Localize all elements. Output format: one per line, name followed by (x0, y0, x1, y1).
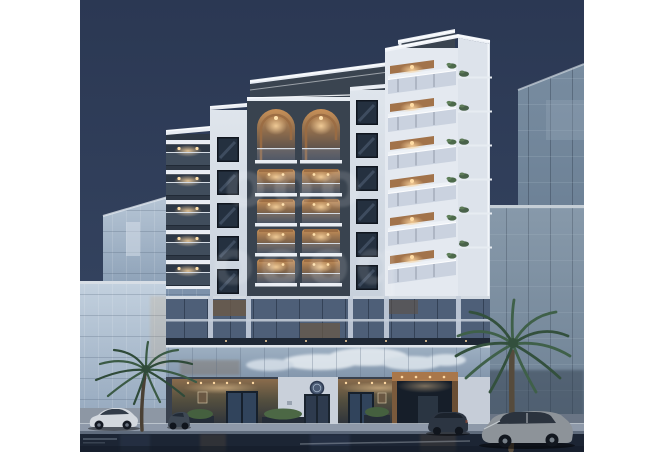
lit-interior (212, 300, 246, 316)
left-balcony-floor (166, 260, 210, 286)
watermark-row2: oooq (212, 226, 404, 299)
screenshot-canvas: ooo oooq (0, 0, 668, 452)
soffit-glow (397, 379, 453, 393)
lit-panel (126, 222, 140, 256)
window (356, 100, 378, 125)
glass-reflection (546, 100, 584, 140)
glass-door (243, 393, 256, 428)
left-balcony-floor (166, 170, 210, 196)
annex-coping (482, 205, 584, 208)
wheel-hub (550, 438, 555, 443)
arch-light (274, 116, 278, 120)
car-wheel (170, 423, 177, 430)
downlight (415, 376, 418, 379)
led-edge-strip (488, 44, 490, 304)
right-glass-annex (482, 205, 584, 430)
downlight (401, 376, 404, 379)
wood-side-wall (392, 381, 397, 430)
watermark-row1: ooo (224, 148, 367, 221)
lower-floors (166, 296, 490, 345)
left-balcony-floor (166, 230, 210, 256)
car-wheel (182, 423, 189, 430)
palm-crown (508, 338, 518, 348)
photo-border-right (584, 0, 668, 452)
credit-line (83, 438, 117, 440)
palm-crown (142, 365, 150, 373)
pier-strip (246, 296, 251, 342)
credit-line (83, 442, 105, 444)
wall-emblem (311, 382, 324, 395)
slab-line (166, 319, 490, 322)
uplight (225, 340, 227, 342)
wheel-hub (125, 423, 129, 427)
address-plaque (287, 401, 292, 405)
left-balcony-floor (166, 140, 210, 166)
navy-sedan (426, 412, 470, 436)
uplight (465, 340, 467, 342)
shrub (365, 407, 389, 417)
downlight (429, 376, 432, 379)
photo-border-left (0, 0, 80, 452)
tail-light (466, 420, 468, 423)
wheel-hub (97, 423, 101, 427)
soffit-band (166, 338, 490, 345)
pier-strip (348, 296, 353, 342)
uplight (385, 340, 387, 342)
left-balcony-floor (166, 200, 210, 226)
base-coping (80, 281, 168, 284)
car-wheel (455, 427, 463, 435)
shrub (264, 409, 302, 420)
car-wheel (433, 427, 441, 435)
wheel-hub (503, 439, 508, 444)
arch-light (319, 116, 323, 120)
car-shadow (479, 442, 575, 449)
downlight (443, 376, 446, 379)
uplight (345, 340, 347, 342)
glass-door (228, 393, 241, 428)
slab (166, 286, 210, 289)
shrub (187, 409, 213, 419)
rendering-scene: ooo oooq (80, 0, 584, 452)
lit-interior (300, 323, 340, 338)
pier-strip (384, 296, 389, 342)
listing-photo[interactable]: ooo oooq (80, 0, 584, 452)
glass-door (350, 394, 360, 427)
lit-interior (388, 300, 418, 314)
frame-top (166, 345, 490, 348)
wall-art (198, 392, 207, 403)
uplight (265, 340, 267, 342)
uplight (305, 340, 307, 342)
wall-art (378, 393, 386, 403)
uplight (425, 340, 427, 342)
pier-strip (208, 296, 213, 342)
